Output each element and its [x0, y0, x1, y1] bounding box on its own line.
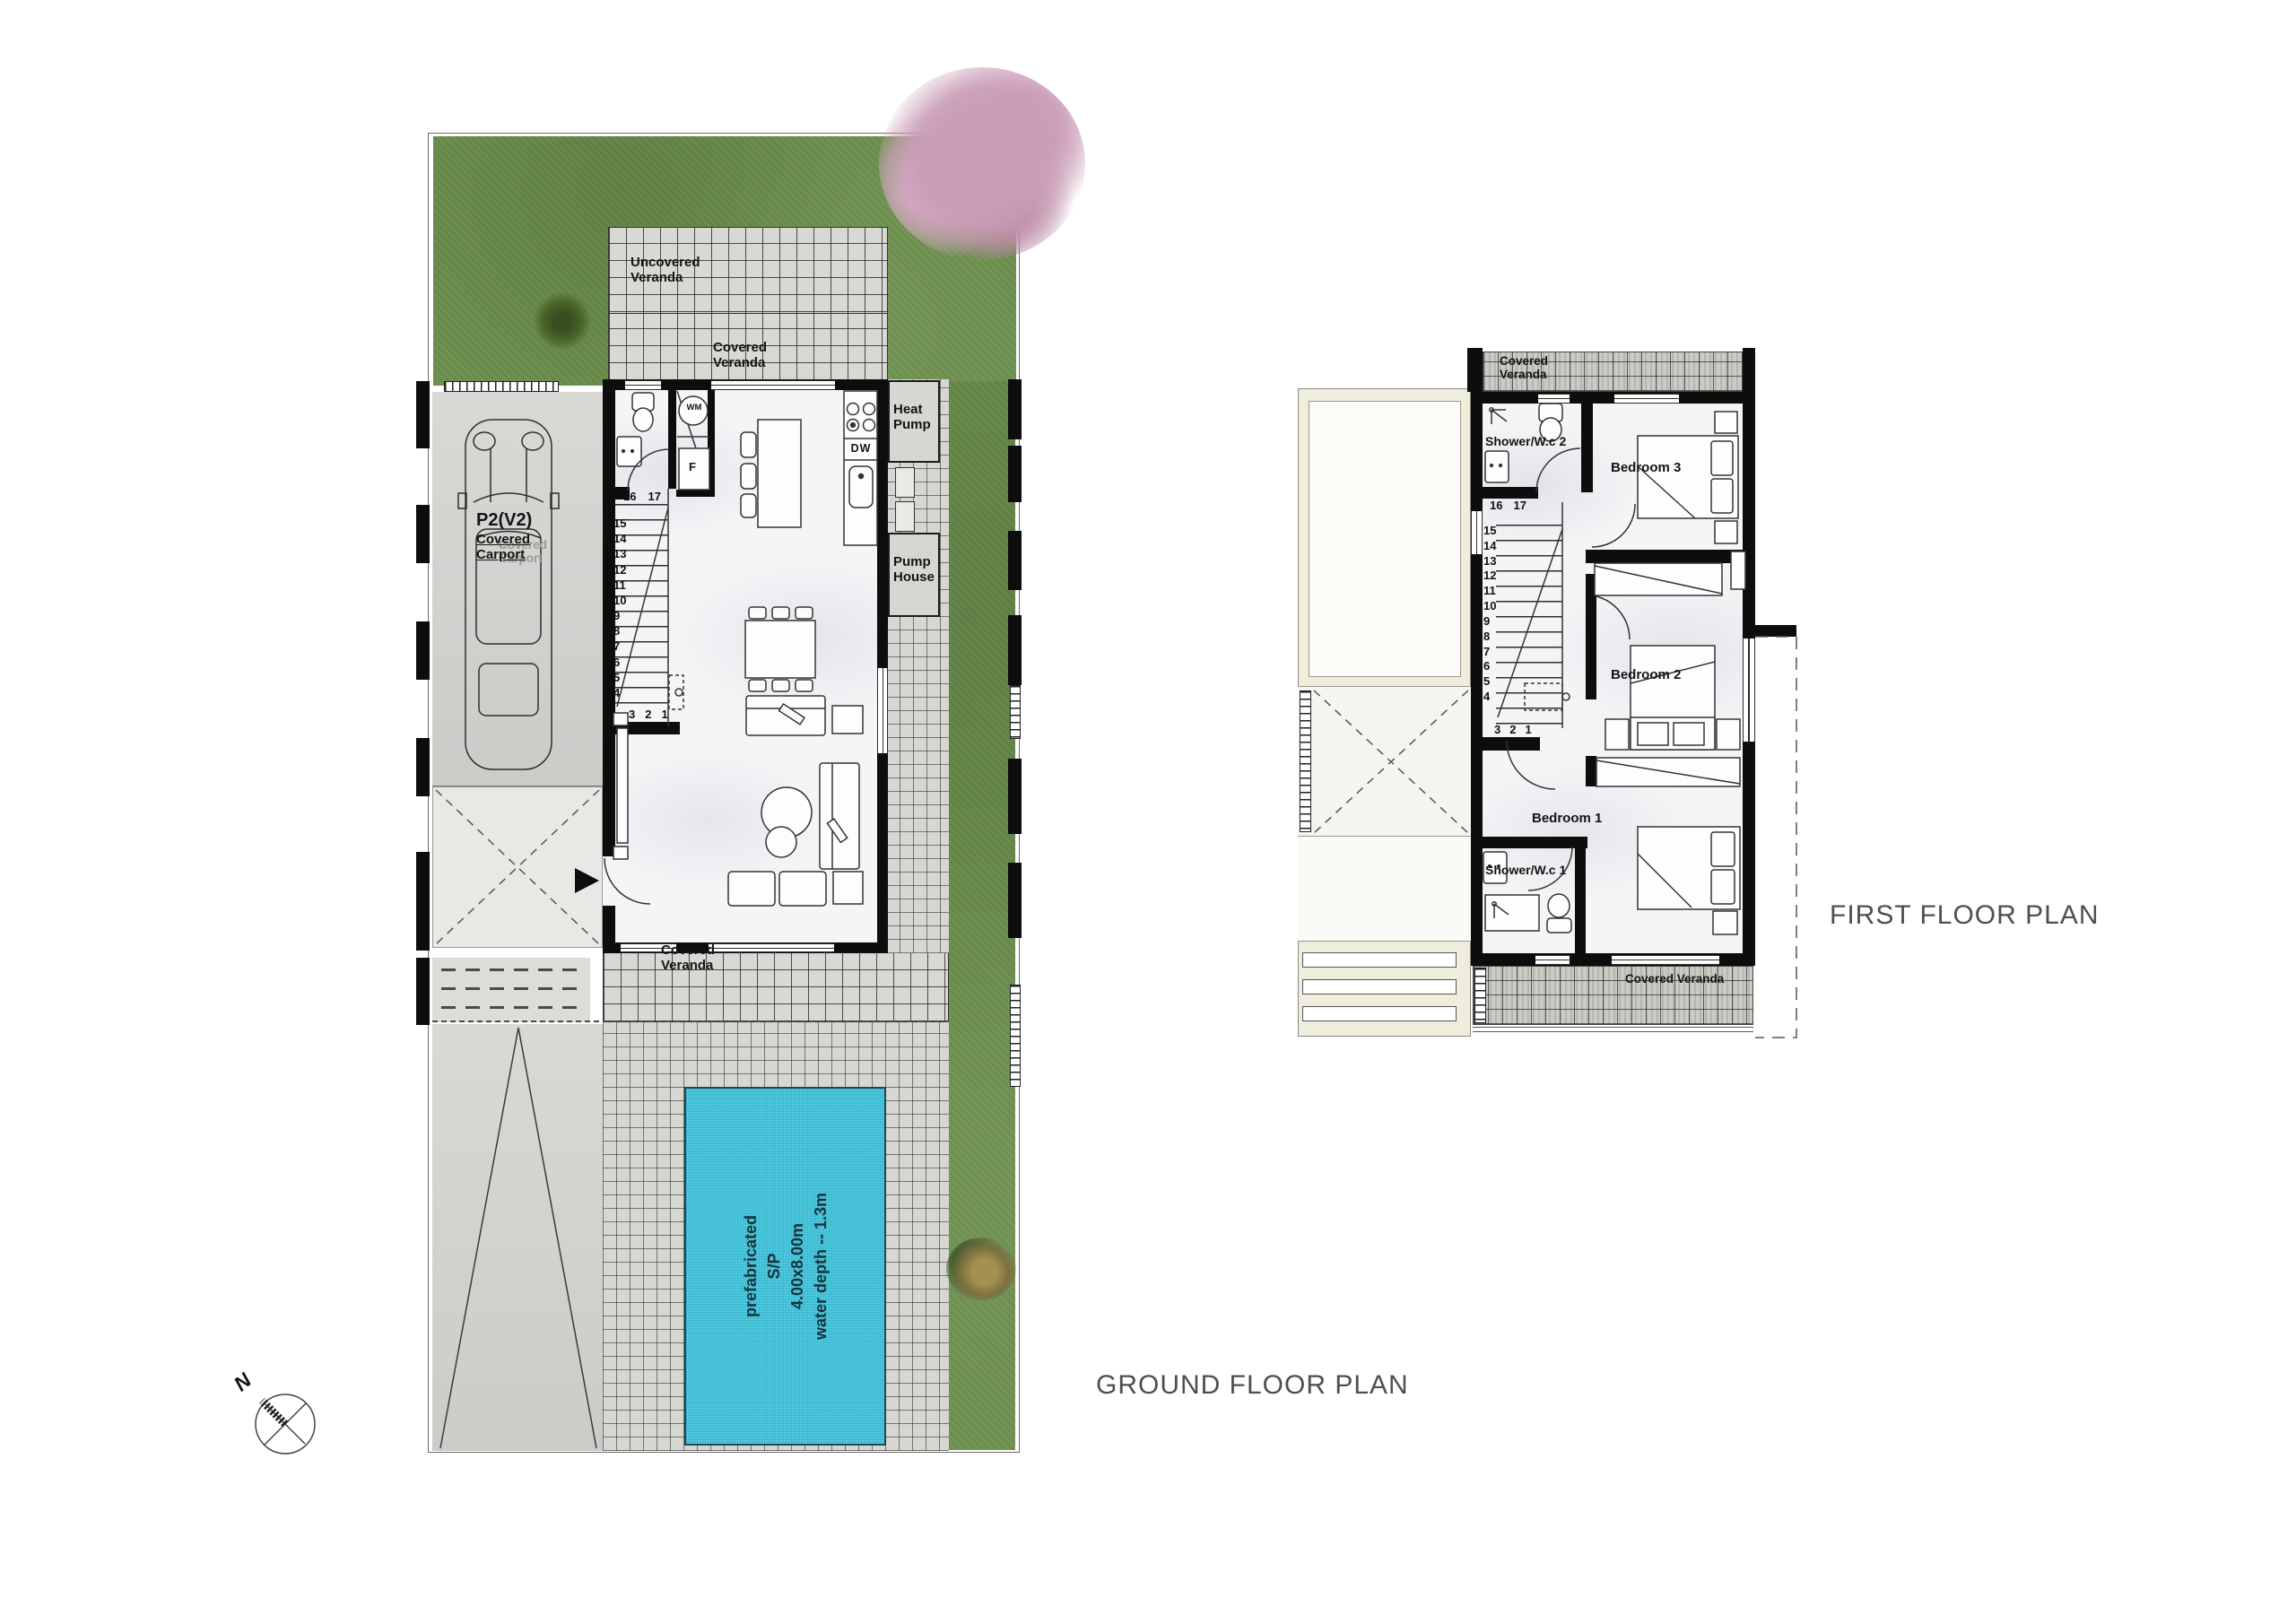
dishwasher-label: DW	[847, 442, 875, 455]
pump-house-label: Pump House	[893, 554, 942, 585]
ff-stair-numbers-column: 151413121110987654	[1483, 524, 1496, 703]
stair-number: 3	[1494, 723, 1500, 736]
covered-veranda-bottom-label: Covered Veranda	[661, 942, 729, 973]
stair-number: 8	[613, 624, 626, 638]
ff-stair-numbers-bottom: 321	[1494, 723, 1532, 736]
covered-veranda-top-label: Covered Veranda	[713, 340, 776, 370]
stair-number: 8	[1483, 630, 1496, 643]
stair-number: 5	[613, 671, 626, 684]
boundary-louvre-strip	[1010, 685, 1021, 739]
veranda-fascia-line	[1473, 1027, 1753, 1032]
shower-wc2-label: Shower/W.c 2	[1485, 435, 1588, 449]
stair-number: 9	[1483, 614, 1496, 628]
bedroom3-bottom-wall	[1586, 550, 1746, 563]
first-floor-title: FIRST FLOOR PLAN	[1830, 900, 2100, 931]
shower-wc1-label: Shower/W.c 1	[1485, 864, 1588, 878]
ff-wall-left	[1471, 392, 1483, 966]
closet-bottom-wall	[676, 490, 715, 497]
veranda-roof-edge	[608, 313, 888, 314]
roof-well	[1309, 401, 1461, 677]
hall-partition	[1586, 574, 1596, 699]
ff-covered-veranda-bottom-label: Covered Veranda	[1625, 972, 1751, 986]
stair-number: 5	[1483, 674, 1496, 688]
pergola-beam	[1302, 979, 1457, 994]
fridge-label: F	[689, 461, 703, 474]
ff-stair-numbers-top: 1617	[1490, 499, 1526, 512]
boundary-wall-segment	[1008, 863, 1022, 938]
veranda-corner-block	[1467, 348, 1483, 392]
stair-number: 13	[613, 547, 626, 560]
window	[711, 380, 835, 390]
boundary-wall-segment	[416, 381, 430, 448]
heat-pump-label: Heat Pump	[893, 402, 938, 432]
stair-numbers-bottom: 321	[629, 708, 668, 721]
window	[1471, 511, 1483, 554]
boundary-wall-segment	[416, 505, 430, 563]
bedroom2-label: Bedroom 2	[1611, 667, 1692, 682]
ff-staircase-steps	[1496, 525, 1562, 726]
stair-number: 16	[623, 490, 636, 503]
ff-covered-veranda-top-label: Covered Veranda	[1500, 354, 1561, 382]
window	[625, 380, 661, 390]
stair-number: 10	[613, 594, 626, 607]
stair-number: 6	[613, 656, 626, 669]
ff-under-stair-wall	[1483, 737, 1540, 751]
boundary-wall-segment	[1008, 446, 1022, 502]
stair-number: 11	[1483, 584, 1496, 597]
sliding-door	[877, 668, 888, 753]
footprint-jut-wall	[1752, 625, 1796, 637]
pergola-beam	[1302, 952, 1457, 968]
window	[1538, 394, 1570, 404]
stair-number: 1	[1525, 723, 1531, 736]
house-wall-right	[877, 379, 888, 953]
stair-number: 14	[613, 532, 626, 545]
service-box	[895, 467, 915, 498]
boundary-wall-segment	[416, 738, 430, 796]
boundary-wall-segment	[416, 852, 430, 951]
entrance-door-gap	[603, 856, 615, 906]
stair-number: 4	[1483, 690, 1496, 703]
window	[1535, 955, 1570, 965]
stair-number: 15	[1483, 524, 1496, 537]
closet-partition-wall	[708, 390, 715, 493]
boundary-wall-segment	[1008, 379, 1022, 439]
stair-number: 16	[1490, 499, 1502, 512]
stair-number: 12	[613, 563, 626, 577]
washing-machine-label: WM	[683, 404, 705, 413]
stair-number: 10	[1483, 599, 1496, 612]
ff-wall-top	[1471, 392, 1743, 404]
floor-plan-sheet: prefabricated S/P 4.00x8.00m water depth…	[0, 0, 2296, 1624]
stair-number: 17	[1513, 499, 1526, 512]
stair-number: 17	[648, 490, 660, 503]
boundary-wall-segment	[416, 958, 430, 1025]
window	[1743, 638, 1755, 742]
ground-floor-title: GROUND FLOOR PLAN	[1096, 1370, 1409, 1401]
window	[1614, 394, 1679, 404]
roof-overhang-dashed-line	[432, 1020, 949, 1022]
under-stair-wall	[603, 722, 680, 734]
boundary-wall-segment	[1008, 759, 1022, 834]
stair-number: 12	[1483, 569, 1496, 582]
bedroom1-label: Bedroom 1	[1532, 811, 1613, 826]
garden-bush	[533, 291, 592, 351]
bedroom3-label: Bedroom 3	[1611, 460, 1692, 475]
stair-number: 14	[1483, 539, 1496, 552]
roof-flat-lower	[1298, 837, 1471, 942]
uncovered-veranda-label: Uncovered Veranda	[631, 255, 711, 285]
stair-number: 13	[1483, 554, 1496, 568]
stair-number: 9	[613, 609, 626, 622]
veranda-louvre-strip-ff	[1474, 968, 1486, 1023]
carport-name-label: Covered Carport	[476, 532, 537, 562]
stair-number: 4	[613, 686, 626, 699]
stair-number: 11	[613, 578, 626, 592]
boundary-louvre-strip	[1010, 985, 1021, 1087]
stair-number: 7	[613, 639, 626, 653]
boundary-wall-segment	[1008, 531, 1022, 590]
boundary-wall-segment	[1008, 615, 1022, 685]
stair-numbers-column: 151413121110987654	[613, 517, 626, 699]
pergola-beam	[1302, 1006, 1457, 1021]
dry-shrub	[946, 1238, 1016, 1300]
void-louvre-strip	[1300, 690, 1311, 832]
stair-numbers-top: 1617	[623, 490, 661, 503]
stair-number: 1	[661, 708, 667, 721]
wc-partition-wall	[668, 390, 676, 489]
stair-number: 2	[1509, 723, 1516, 736]
void-over-carport	[1298, 686, 1471, 837]
window	[1612, 955, 1719, 965]
stair-number: 3	[629, 708, 635, 721]
stair-number: 15	[613, 517, 626, 530]
wardrobe-end-wall	[1586, 756, 1596, 786]
blossom-tree	[879, 67, 1085, 260]
stair-number: 6	[1483, 659, 1496, 673]
shower1-top-wall	[1471, 837, 1587, 848]
carport-louvre-strip	[444, 381, 559, 392]
stair-number: 2	[645, 708, 651, 721]
carport-code-label: P2(V2)	[476, 510, 557, 531]
service-box	[895, 501, 915, 532]
shower2-bottom-wall	[1483, 487, 1538, 499]
boundary-wall-segment	[416, 621, 430, 680]
stair-number: 7	[1483, 645, 1496, 658]
